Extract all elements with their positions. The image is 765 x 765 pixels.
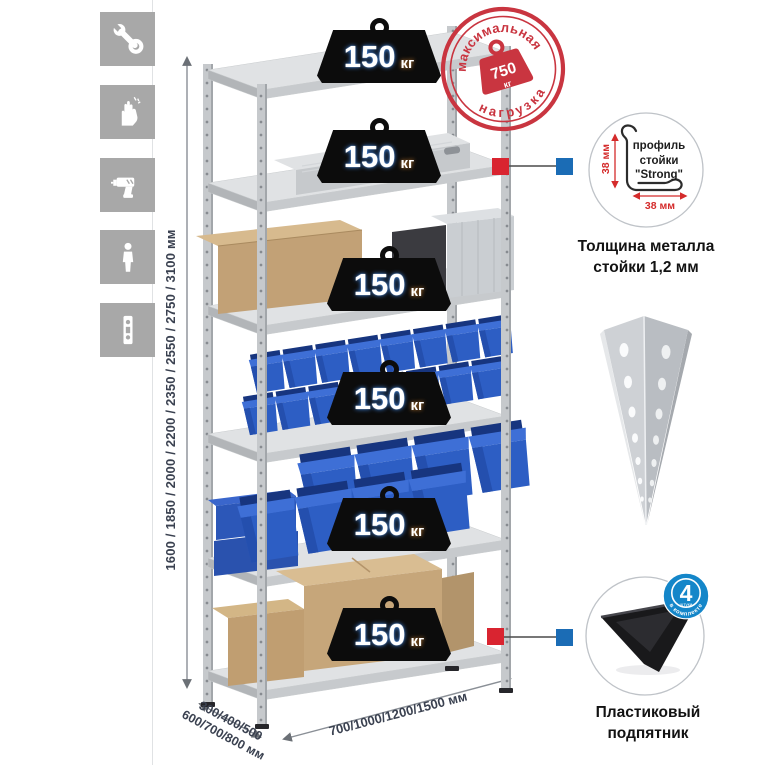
included-count-badge: 4 штуки в комплекте	[662, 572, 710, 620]
perforated-profile-icon	[111, 313, 145, 347]
foot-caption: Пластиковый подпятник	[553, 702, 743, 744]
profile-vertical-dim: 38 мм	[600, 136, 612, 182]
wrench-icon	[111, 22, 145, 56]
profile-label: профиль стойки "Strong"	[631, 139, 687, 183]
tile-person	[100, 230, 155, 284]
tile-perforated-profile	[100, 303, 155, 357]
gloves-icon	[111, 95, 145, 129]
tile-gloves	[100, 85, 155, 139]
shelf-weight-3: 150кг	[327, 246, 451, 311]
shelf-weight-2: 150кг	[317, 118, 441, 183]
product-infographic: 1600 / 1850 / 2000 / 2200 / 2350 / 2550 …	[0, 0, 765, 765]
profile-caption: Толщина металла стойки 1,2 мм	[551, 236, 741, 278]
height-dimension-label: 1600 / 1850 / 2000 / 2200 / 2350 / 2550 …	[163, 200, 181, 600]
tile-wrench	[100, 12, 155, 66]
badge-sub: штуки	[680, 602, 693, 607]
shelf-weight-5: 150кг	[327, 486, 451, 551]
drill-icon	[111, 168, 145, 202]
shelf-weight-4: 150кг	[327, 360, 451, 425]
person-icon	[111, 240, 145, 274]
profile-horizontal-dim: 38 мм	[629, 200, 691, 212]
shelf-weight-6: 150кг	[327, 596, 451, 661]
tile-drill	[100, 158, 155, 212]
angle-post-image	[600, 316, 692, 525]
